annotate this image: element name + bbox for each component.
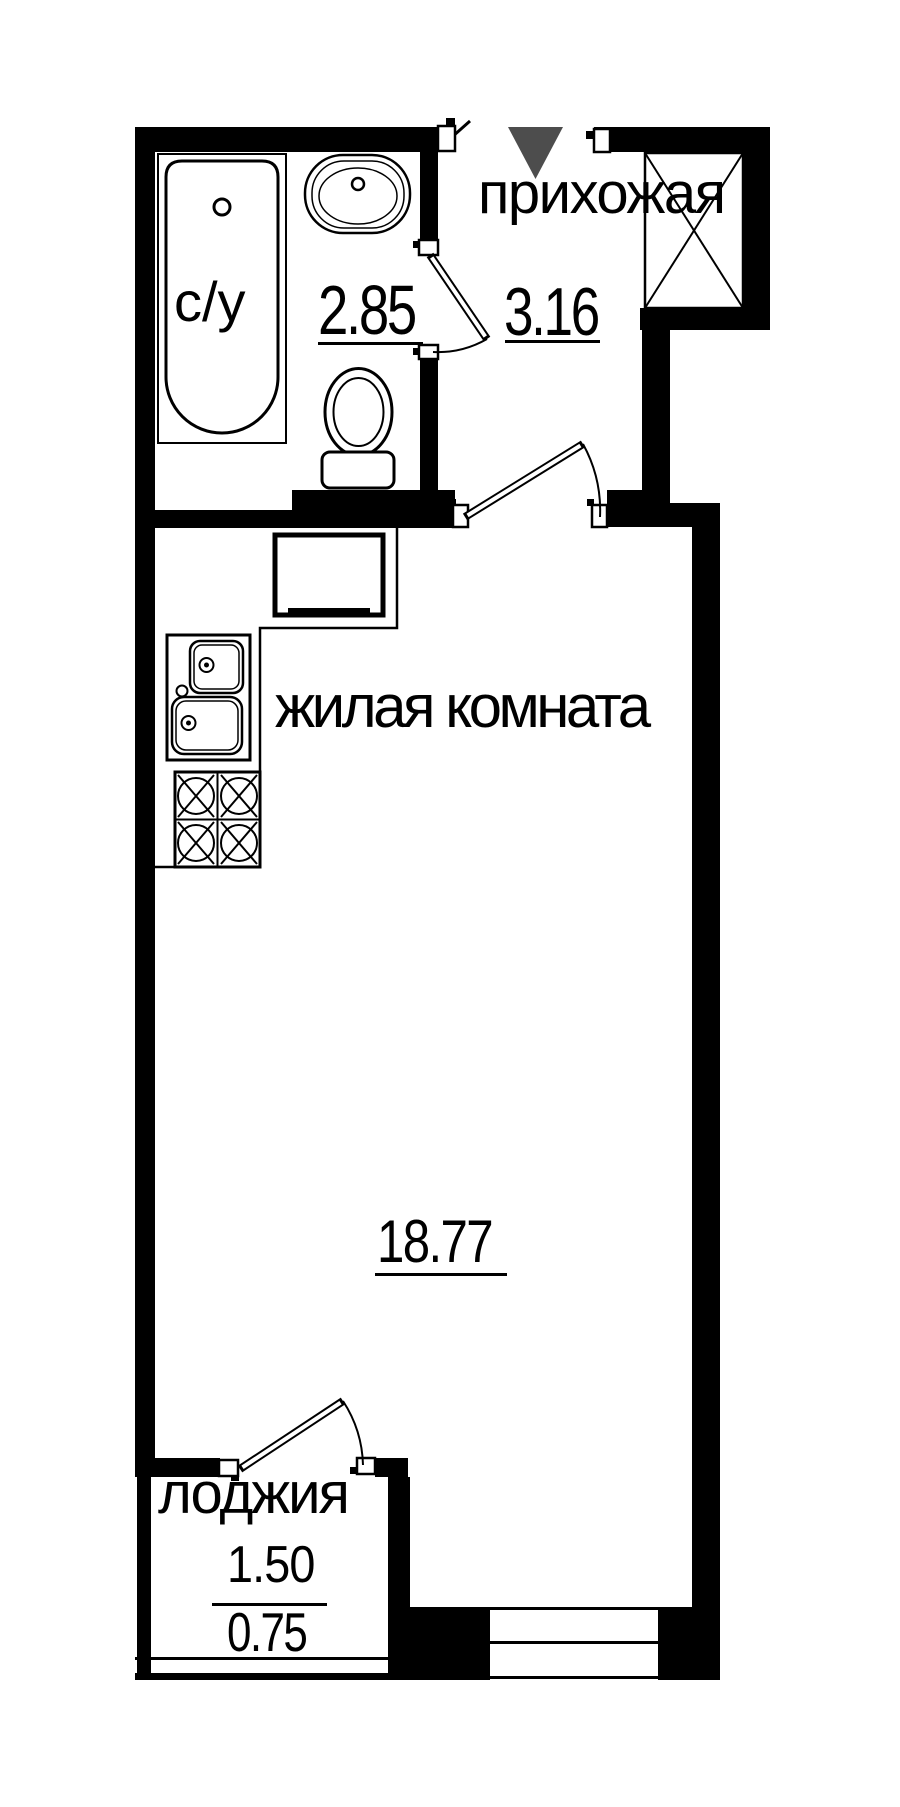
- living-room-label: жилая комната: [275, 677, 648, 737]
- bath-door-jamb-top: [419, 240, 438, 255]
- wall-bath-bottom-lip: [292, 490, 455, 510]
- wall-living-door-head: [607, 490, 642, 527]
- wall-jog: [670, 503, 720, 527]
- living-room-door-icon: [465, 444, 600, 517]
- entrance-jamb-right: [594, 129, 610, 152]
- loggia-area-full: 1.50: [227, 1539, 314, 1591]
- washbasin-icon: [305, 155, 410, 233]
- wall-bath-right-lower: [420, 357, 438, 510]
- wall-loggia-right: [388, 1477, 410, 1607]
- bathroom-label: с/у: [174, 274, 246, 330]
- wall-loggia-left: [137, 1458, 151, 1680]
- window-mid-line: [490, 1641, 658, 1644]
- wall-loggia-top-right: [375, 1458, 408, 1477]
- wall-top-left: [135, 127, 453, 152]
- loggia-label: лоджия: [158, 1465, 348, 1523]
- floor-plan-drawing: [0, 0, 900, 1807]
- toilet-icon: [322, 369, 394, 489]
- floor-plan: прихожая 3.16 с/у 2.85 жилая комната 18.…: [0, 0, 900, 1807]
- wall-right-upper: [743, 127, 770, 330]
- bathroom-area: 2.85: [318, 275, 415, 345]
- window-pier-left: [388, 1607, 490, 1680]
- refrigerator-icon: [275, 535, 383, 616]
- balcony-door-icon: [240, 1401, 363, 1469]
- walls: [135, 127, 770, 1680]
- dimension-underlines: [212, 340, 600, 1606]
- entrance-jamb-left: [438, 126, 455, 151]
- wall-left-outer: [135, 127, 155, 1458]
- hallway-label: прихожая: [478, 165, 724, 223]
- living-room-area: 18.77: [377, 1212, 492, 1272]
- window-outer-line: [490, 1676, 658, 1679]
- loggia-door-jamb-right: [357, 1458, 375, 1474]
- wall-right-outer: [692, 527, 720, 1607]
- bathroom-door-icon: [430, 255, 487, 352]
- hallway-area: 3.16: [504, 278, 598, 346]
- loggia-area-reduced: 0.75: [227, 1605, 306, 1660]
- wall-bath-right-upper: [420, 152, 438, 252]
- window-pier-right: [658, 1607, 720, 1680]
- stove-icon: [175, 772, 260, 867]
- wall-bath-bottom: [135, 510, 467, 528]
- kitchen-sink-icon: [167, 635, 250, 760]
- wall-hall-right: [642, 330, 670, 527]
- window-inner-line: [490, 1607, 658, 1610]
- loggia-sill-band: [135, 1673, 490, 1680]
- wall-below-shaft: [640, 308, 770, 330]
